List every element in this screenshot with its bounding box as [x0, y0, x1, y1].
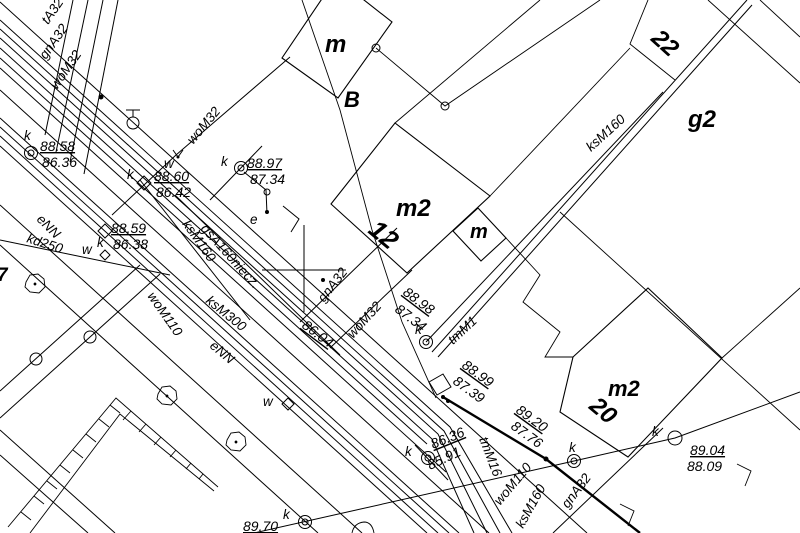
point-code-k-i: k — [405, 444, 413, 459]
telecom-line — [432, 0, 747, 352]
sewer-line — [426, 92, 663, 342]
utility-label-gnA32-bottom: gnA32 — [558, 470, 594, 511]
tree-icon — [226, 432, 246, 451]
point-code-w-d: w — [82, 242, 93, 257]
parcel-label-m-top: m — [325, 31, 346, 58]
point-code-k-right: k — [569, 440, 577, 455]
telecom-line — [438, 5, 752, 357]
access-line — [0, 265, 140, 391]
hydrant-icon — [127, 117, 139, 129]
service-line — [283, 206, 299, 232]
node-dot — [446, 399, 450, 403]
node-dot — [441, 395, 445, 399]
parcel-label-g2: g2 — [687, 106, 717, 133]
junction-chamber-symbol — [429, 374, 451, 395]
parcel-boundary-zigzag — [506, 238, 573, 357]
parcel-boundaries — [302, 0, 800, 533]
point-code-k-c: k — [221, 154, 229, 169]
point-dots — [99, 95, 549, 462]
spot-elevation-b-bottom: 86.42 — [156, 184, 191, 200]
point-code-w-b: w — [164, 156, 175, 171]
small-post-circle — [264, 189, 270, 195]
utility-label-ksM300: ksM300 — [203, 293, 250, 335]
spot-elevation-c-top: 88.97 — [247, 155, 283, 171]
valve-square-symbol — [100, 250, 110, 260]
node-dot — [265, 210, 269, 214]
parcel-label-7: 7 — [0, 265, 9, 286]
spot-elevation-a-bottom: 86.36 — [42, 154, 77, 170]
survey-map-drawing: mBm212m22g2m220788.5886.3688.6086.4288.9… — [0, 0, 800, 533]
parcel-boundary — [722, 288, 800, 358]
point-code-k-a: k — [24, 128, 32, 143]
spot-elevation-partial: 89.70 — [243, 518, 278, 533]
node-dot — [544, 457, 549, 462]
utility-line — [0, 68, 446, 472]
hydrant-icon — [126, 110, 140, 117]
road-edge-line — [0, 245, 318, 533]
utility-label-tA32: tA32 — [38, 0, 66, 27]
buildings — [282, 0, 722, 457]
spot-elevation-a-top: 88.58 — [40, 138, 75, 154]
manhole-double-circle-symbol — [25, 147, 38, 160]
road-edge-line — [0, 430, 115, 533]
utility-label-woM110: woM110 — [145, 289, 186, 339]
parcel-boundary — [760, 0, 800, 37]
access-line — [0, 274, 160, 418]
map-label-layer: mBm212m22g2m220788.5886.3688.6086.4288.9… — [0, 0, 725, 533]
utility-line — [0, 2, 587, 533]
utility-label-eNN-road: eNN — [207, 338, 238, 367]
building-label-m2-20: m2 — [608, 376, 641, 401]
utility-line — [0, 146, 427, 533]
embankment-bottom-edge — [30, 414, 214, 533]
utility-label-tmM16: tmM16 — [476, 435, 505, 479]
house-number-22: 22 — [645, 24, 684, 63]
tree-icon — [157, 386, 177, 405]
valve-square-symbol — [282, 398, 294, 410]
spot-elevation-d-bottom: 86.38 — [113, 236, 148, 252]
parcel-boundary-g2 — [708, 0, 800, 83]
parcel-boundary — [395, 0, 540, 123]
corner-mark — [737, 464, 751, 486]
node-dot — [177, 156, 180, 159]
node-dot — [99, 95, 104, 100]
building-label-m-small: m — [470, 221, 488, 243]
building-outline-m2-20 — [560, 288, 722, 457]
fence-line — [376, 0, 600, 106]
spot-elevation-d-top: 88.59 — [111, 220, 146, 236]
embankment-top-edge — [8, 398, 218, 527]
parcel-label-B: B — [344, 87, 360, 112]
utility-label-ksM160-right: ksM160 — [583, 111, 629, 154]
utility-line — [0, 136, 438, 533]
spot-elevation-c-bottom: 87.34 — [250, 171, 285, 187]
point-code-e: e — [250, 212, 258, 227]
utility-line — [84, 0, 118, 174]
spot-elevation-j-bottom: 88.09 — [687, 458, 722, 474]
point-code-k-bottom: k — [283, 507, 291, 522]
map-canvas: mBm212m22g2m220788.5886.3688.6086.4288.9… — [0, 0, 800, 533]
building-label-m2-12: m2 — [396, 195, 431, 222]
embankment-hatch — [123, 411, 203, 479]
utility-label-woM32-center: woM32 — [344, 298, 385, 341]
utility-label-woM32-mid: woM32 — [184, 104, 224, 147]
point-code-w-junction: w — [263, 394, 274, 409]
utility-label-gnA32-center: gnA32 — [315, 264, 351, 304]
spot-elevation-j-top: 89.04 — [690, 442, 725, 458]
road-utility-lines — [0, 2, 587, 533]
